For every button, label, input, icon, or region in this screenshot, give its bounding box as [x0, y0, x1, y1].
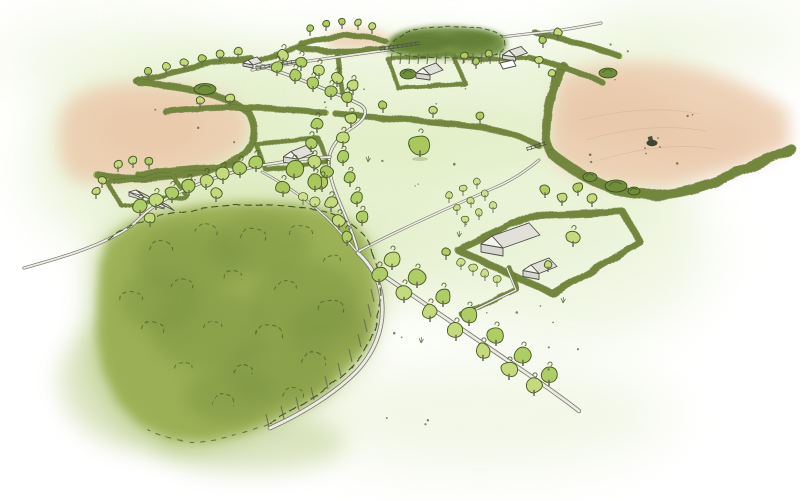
hedgerow-tree — [548, 69, 555, 76]
sketch-canvas — [0, 0, 800, 500]
woodland — [60, 203, 380, 472]
landscape-illustration — [0, 0, 800, 500]
